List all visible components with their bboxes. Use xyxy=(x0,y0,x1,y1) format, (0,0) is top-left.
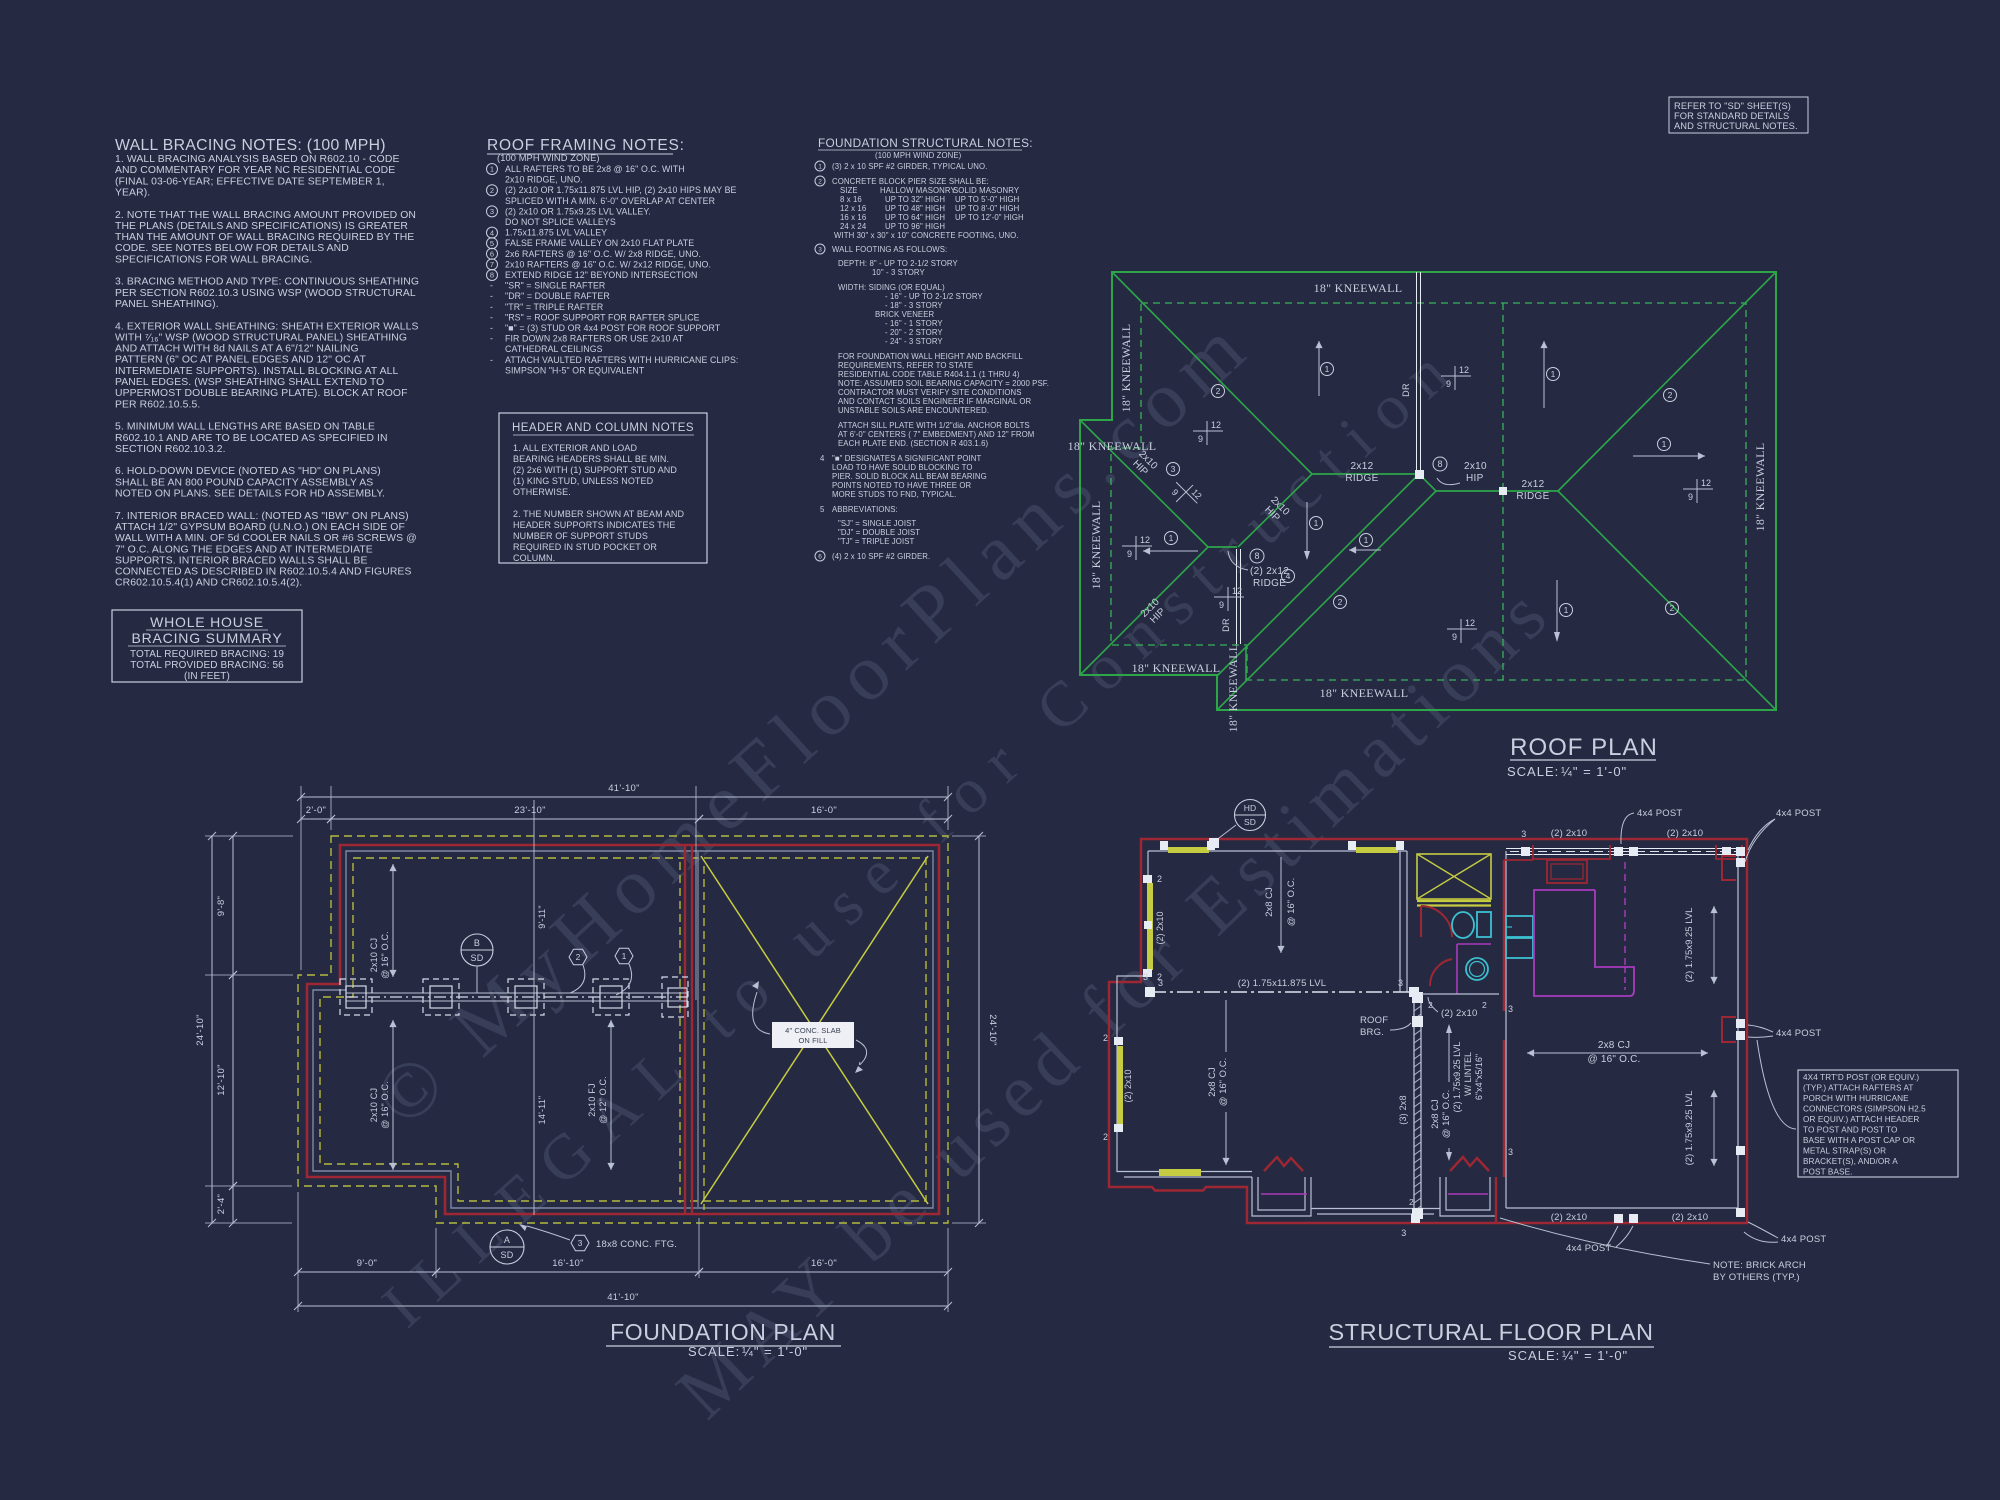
svg-text:UP TO 48" HIGH: UP TO 48" HIGH xyxy=(885,204,945,213)
svg-text:SCALE:: SCALE: xyxy=(688,1344,740,1359)
svg-text:EACH PLATE END. (SECTION R 403: EACH PLATE END. (SECTION R 403.1.6) xyxy=(838,439,989,448)
svg-text:UP TO 12'-0" HIGH: UP TO 12'-0" HIGH xyxy=(955,213,1024,222)
svg-text:- 18" - 3 STORY: - 18" - 3 STORY xyxy=(885,301,943,310)
svg-text:2: 2 xyxy=(1103,1132,1108,1142)
svg-text:@ 16" O.C.: @ 16" O.C. xyxy=(1441,1090,1452,1138)
svg-text:9: 9 xyxy=(1127,549,1132,559)
svg-text:PORCH WITH HURRICANE: PORCH WITH HURRICANE xyxy=(1803,1094,1909,1103)
svg-text:-: - xyxy=(490,312,493,322)
svg-text:TOTAL PROVIDED BRACING: 56: TOTAL PROVIDED BRACING: 56 xyxy=(130,660,284,671)
svg-text:41'-10": 41'-10" xyxy=(607,1292,639,1303)
svg-text:FIR DOWN 2x8 RAFTERS OR USE 2x: FIR DOWN 2x8 RAFTERS OR USE 2x10 AT xyxy=(505,334,684,344)
svg-text:(2) 2x6 WITH (1) SUPPORT STUD: (2) 2x6 WITH (1) SUPPORT STUD AND xyxy=(513,465,677,475)
svg-text:3: 3 xyxy=(578,1238,583,1248)
svg-text:NUMBER OF SUPPORT STUDS: NUMBER OF SUPPORT STUDS xyxy=(513,531,648,541)
svg-text:PANEL SHEATHING).: PANEL SHEATHING). xyxy=(115,299,219,310)
svg-text:3: 3 xyxy=(1398,978,1403,988)
svg-text:POINTS NOTED TO HAVE THREE OR: POINTS NOTED TO HAVE THREE OR xyxy=(832,481,971,490)
svg-text:RIDGE: RIDGE xyxy=(1516,491,1549,502)
svg-text:RESIDENTIAL CODE TABLE R404.1.: RESIDENTIAL CODE TABLE R404.1.1 (1 THRU … xyxy=(838,370,1020,379)
svg-text:1: 1 xyxy=(1325,364,1330,374)
svg-text:RIDGE: RIDGE xyxy=(1253,578,1286,589)
svg-text:ROOF: ROOF xyxy=(1360,1015,1388,1026)
svg-text:1: 1 xyxy=(622,951,627,961)
svg-text:3: 3 xyxy=(1508,1004,1513,1014)
svg-text:16 x 16: 16 x 16 xyxy=(840,213,866,222)
svg-text:2: 2 xyxy=(1668,390,1673,400)
svg-text:PATTERN (6" OC AT PANEL EDGES: PATTERN (6" OC AT PANEL EDGES AND 12" OC… xyxy=(115,355,366,366)
svg-text:2. NOTE THAT THE WALL BRACING: 2. NOTE THAT THE WALL BRACING AMOUNT PRO… xyxy=(115,210,416,221)
svg-text:2x10 FJ: 2x10 FJ xyxy=(587,1083,597,1116)
svg-text:-: - xyxy=(490,281,493,291)
svg-text:HEADER AND COLUMN NOTES: HEADER AND COLUMN NOTES xyxy=(512,422,694,434)
svg-text:16'-0": 16'-0" xyxy=(811,1258,837,1269)
svg-text:5: 5 xyxy=(820,505,825,514)
svg-text:7. INTERIOR BRACED WALL: (NOTE: 7. INTERIOR BRACED WALL: (NOTED AS "IBW"… xyxy=(115,511,409,522)
svg-text:-: - xyxy=(490,302,493,312)
svg-text:PIER. SOLID BLOCK ALL BEAM BEA: PIER. SOLID BLOCK ALL BEAM BEARING xyxy=(832,472,987,481)
svg-text:ROOF PLAN: ROOF PLAN xyxy=(1510,734,1658,761)
svg-text:2x10: 2x10 xyxy=(1464,461,1487,472)
svg-text:3: 3 xyxy=(1143,972,1148,982)
svg-text:@ 16" O.C.: @ 16" O.C. xyxy=(1218,1058,1229,1106)
svg-text:16'-0": 16'-0" xyxy=(811,805,837,816)
svg-text:¼" = 1'-0": ¼" = 1'-0" xyxy=(742,1344,808,1359)
svg-text:B: B xyxy=(474,938,480,948)
svg-text:9'-11": 9'-11" xyxy=(537,905,547,928)
svg-text:"DJ" = DOUBLE JOIST: "DJ" = DOUBLE JOIST xyxy=(838,528,920,537)
svg-text:23'-10": 23'-10" xyxy=(514,805,546,816)
svg-text:"TR" = TRIPLE RAFTER: "TR" = TRIPLE RAFTER xyxy=(505,302,603,312)
svg-text:(2) 2x10: (2) 2x10 xyxy=(1551,1212,1587,1223)
svg-text:@ 12" O.C.: @ 12" O.C. xyxy=(598,1076,608,1124)
svg-text:UP TO 32" HIGH: UP TO 32" HIGH xyxy=(885,195,945,204)
svg-text:@ 16" O.C.: @ 16" O.C. xyxy=(380,1081,390,1129)
svg-text:WHOLE HOUSE: WHOLE HOUSE xyxy=(150,614,264,630)
svg-text:ALL RAFTERS TO BE 2x8 @ 16" O.: ALL RAFTERS TO BE 2x8 @ 16" O.C. WITH xyxy=(505,164,685,174)
svg-text:HD: HD xyxy=(1244,803,1256,813)
svg-text:@ 16" O.C.: @ 16" O.C. xyxy=(1588,1054,1641,1065)
svg-text:2x10 RIDGE, UNO.: 2x10 RIDGE, UNO. xyxy=(505,175,583,185)
svg-text:UP TO 8'-0" HIGH: UP TO 8'-0" HIGH xyxy=(955,204,1019,213)
svg-text:2x8 CJ: 2x8 CJ xyxy=(1264,887,1275,917)
svg-text:"SR" = SINGLE RAFTER: "SR" = SINGLE RAFTER xyxy=(505,281,605,291)
svg-text:SPECIFICATIONS FOR WALL BRACIN: SPECIFICATIONS FOR WALL BRACING. xyxy=(115,254,312,265)
svg-text:4x4 POST: 4x4 POST xyxy=(1776,808,1821,819)
svg-text:2: 2 xyxy=(818,178,822,185)
svg-text:NOTE: ASSUMED SOIL BEARING CAP: NOTE: ASSUMED SOIL BEARING CAPACITY = 20… xyxy=(838,379,1049,388)
svg-text:THAN THE AMOUNT OF WALL BRACIN: THAN THE AMOUNT OF WALL BRACING REQUIRED… xyxy=(115,232,414,243)
svg-text:METAL STRAP(S) OR: METAL STRAP(S) OR xyxy=(1803,1147,1886,1156)
svg-text:2x8 CJ: 2x8 CJ xyxy=(1598,1040,1630,1051)
svg-text:FOR FOUNDATION WALL HEIGHT AND: FOR FOUNDATION WALL HEIGHT AND BACKFILL xyxy=(838,352,1024,361)
svg-text:18" KNEEWALL: 18" KNEEWALL xyxy=(1089,501,1103,590)
svg-text:(4) 2 x 10 SPF #2 GIRDER.: (4) 2 x 10 SPF #2 GIRDER. xyxy=(832,552,930,561)
svg-text:CR602.10.5.4(1) AND CR602.10.5: CR602.10.5.4(1) AND CR602.10.5.4(2). xyxy=(115,578,302,589)
svg-text:1.75x11.875 LVL VALLEY: 1.75x11.875 LVL VALLEY xyxy=(505,228,607,238)
svg-text:(1) KING STUD, UNLESS NOTED: (1) KING STUD, UNLESS NOTED xyxy=(513,476,654,486)
svg-text:(2) 2x10: (2) 2x10 xyxy=(1667,828,1703,839)
svg-text:FALSE FRAME VALLEY ON 2x10 FLA: FALSE FRAME VALLEY ON 2x10 FLAT PLATE xyxy=(505,238,694,248)
svg-text:- 16" - UP TO 2-1/2 STORY: - 16" - UP TO 2-1/2 STORY xyxy=(885,292,983,301)
svg-text:4X4 TRT'D POST (OR EQUIV.): 4X4 TRT'D POST (OR EQUIV.) xyxy=(1803,1073,1919,1082)
svg-text:R602.10.1 AND ARE TO BE LOCATE: R602.10.1 AND ARE TO BE LOCATED AS SPECI… xyxy=(115,433,388,444)
svg-text:5. MINIMUM WALL LENGTHS ARE BA: 5. MINIMUM WALL LENGTHS ARE BASED ON TAB… xyxy=(115,422,375,433)
svg-text:-: - xyxy=(490,334,493,344)
svg-text:1: 1 xyxy=(1169,533,1174,543)
svg-text:3: 3 xyxy=(1508,1147,1513,1157)
svg-text:BY OTHERS (TYP.): BY OTHERS (TYP.) xyxy=(1713,1272,1800,1283)
svg-text:3: 3 xyxy=(1521,829,1526,839)
svg-text:RIDGE: RIDGE xyxy=(1345,473,1378,484)
svg-text:CATHEDRAL CEILINGS: CATHEDRAL CEILINGS xyxy=(505,344,603,354)
svg-text:9: 9 xyxy=(1198,434,1203,444)
svg-text:2x12: 2x12 xyxy=(1522,479,1545,490)
svg-text:7" O.C. ALONG THE EDGES AND AT: 7" O.C. ALONG THE EDGES AND AT INTERMEDI… xyxy=(115,544,373,555)
svg-text:SD: SD xyxy=(471,953,484,963)
svg-text:UP TO 64" HIGH: UP TO 64" HIGH xyxy=(885,213,945,222)
svg-text:2x12: 2x12 xyxy=(1351,461,1374,472)
svg-text:12 x 16: 12 x 16 xyxy=(840,204,866,213)
svg-text:18x8 CONC. FTG.: 18x8 CONC. FTG. xyxy=(596,1239,677,1250)
svg-text:6. HOLD-DOWN DEVICE (NOTED AS: 6. HOLD-DOWN DEVICE (NOTED AS "HD" ON PL… xyxy=(115,466,381,477)
svg-text:- 24" - 3 STORY: - 24" - 3 STORY xyxy=(885,337,943,346)
svg-text:9'-8": 9'-8" xyxy=(216,896,227,916)
svg-text:@ 16" O.C.: @ 16" O.C. xyxy=(1286,878,1297,926)
svg-text:WIDTH: SIDING (OR EQUAL): WIDTH: SIDING (OR EQUAL) xyxy=(838,283,945,292)
svg-text:18" KNEEWALL: 18" KNEEWALL xyxy=(1068,439,1157,453)
svg-text:10" - 3 STORY: 10" - 3 STORY xyxy=(872,268,925,277)
svg-text:BASE WITH A POST CAP OR: BASE WITH A POST CAP OR xyxy=(1803,1136,1915,1145)
svg-text:2x10 CJ: 2x10 CJ xyxy=(369,1088,379,1122)
svg-text:ROOF FRAMING NOTES:: ROOF FRAMING NOTES: xyxy=(487,137,685,154)
svg-text:2x10 CJ: 2x10 CJ xyxy=(369,938,379,972)
svg-text:9: 9 xyxy=(1452,632,1457,642)
svg-text:18" KNEEWALL: 18" KNEEWALL xyxy=(1132,661,1221,675)
svg-text:REFER TO "SD" SHEET(S): REFER TO "SD" SHEET(S) xyxy=(1674,101,1791,111)
svg-text:UNSTABLE SOILS ARE ENCOUNTERED: UNSTABLE SOILS ARE ENCOUNTERED. xyxy=(838,406,989,415)
svg-text:(2) 1.75x9.25 LVL: (2) 1.75x9.25 LVL xyxy=(1684,1091,1695,1166)
svg-text:"SJ" = SINGLE JOIST: "SJ" = SINGLE JOIST xyxy=(838,519,916,528)
svg-text:(2) 1.75x9.25 LVL: (2) 1.75x9.25 LVL xyxy=(1452,1042,1462,1113)
svg-text:(IN FEET): (IN FEET) xyxy=(184,671,230,682)
svg-text:2x8 CJ: 2x8 CJ xyxy=(1430,1099,1441,1129)
svg-text:3: 3 xyxy=(490,207,494,216)
svg-text:- 16" - 1 STORY: - 16" - 1 STORY xyxy=(885,319,943,328)
svg-text:2: 2 xyxy=(1216,386,1221,396)
svg-text:12'-10": 12'-10" xyxy=(216,1064,227,1096)
svg-text:8: 8 xyxy=(1254,551,1259,561)
svg-text:(FINAL 03-06-YEAR; EFFECTIVE D: (FINAL 03-06-YEAR; EFFECTIVE DATE SEPTEM… xyxy=(115,176,385,187)
svg-text:2: 2 xyxy=(1157,874,1162,884)
svg-text:AND STRUCTURAL NOTES.: AND STRUCTURAL NOTES. xyxy=(1674,121,1798,131)
svg-text:18" KNEEWALL: 18" KNEEWALL xyxy=(1753,443,1767,532)
svg-text:¼" = 1'-0": ¼" = 1'-0" xyxy=(1562,1348,1628,1363)
svg-text:1. ALL EXTERIOR AND LOAD: 1. ALL EXTERIOR AND LOAD xyxy=(513,443,638,453)
svg-text:2: 2 xyxy=(1670,603,1675,613)
svg-text:REQUIRED IN STUD POCKET OR: REQUIRED IN STUD POCKET OR xyxy=(513,542,657,552)
svg-text:12: 12 xyxy=(1211,420,1221,430)
svg-text:YEAR).: YEAR). xyxy=(115,187,150,198)
svg-text:HEADER SUPPORTS INDICATES THE: HEADER SUPPORTS INDICATES THE xyxy=(513,520,675,530)
svg-text:2'-4": 2'-4" xyxy=(216,1194,227,1214)
svg-text:CONNECTORS (SIMPSON H2.5: CONNECTORS (SIMPSON H2.5 xyxy=(1803,1105,1926,1114)
svg-text:-: - xyxy=(490,355,493,365)
svg-text:WALL BRACING NOTES: (100 MPH): WALL BRACING NOTES: (100 MPH) xyxy=(115,137,386,154)
svg-text:AND COMMENTARY FOR YEAR NC RES: AND COMMENTARY FOR YEAR NC RESIDENTIAL C… xyxy=(115,165,395,176)
svg-text:SECTION R602.10.3.2.: SECTION R602.10.3.2. xyxy=(115,444,226,455)
svg-text:2: 2 xyxy=(1103,1033,1108,1043)
svg-text:4. EXTERIOR WALL SHEATHING: SH: 4. EXTERIOR WALL SHEATHING: SHEATH EXTER… xyxy=(115,321,419,332)
svg-text:SD: SD xyxy=(1244,817,1256,827)
svg-text:18" KNEEWALL: 18" KNEEWALL xyxy=(1119,324,1133,413)
svg-text:2: 2 xyxy=(1482,1000,1487,1010)
svg-text:STRUCTURAL FLOOR PLAN: STRUCTURAL FLOOR PLAN xyxy=(1328,1319,1653,1345)
svg-text:1: 1 xyxy=(1314,518,1319,528)
svg-text:SCALE:: SCALE: xyxy=(1508,1348,1560,1363)
svg-text:-: - xyxy=(490,323,493,333)
svg-text:9: 9 xyxy=(1219,600,1224,610)
svg-text:ON FILL: ON FILL xyxy=(798,1036,827,1045)
svg-text:(3) 2x8: (3) 2x8 xyxy=(1398,1095,1408,1124)
svg-text:SOLID MASONRY: SOLID MASONRY xyxy=(953,186,1020,195)
svg-text:AND CONTACT SOILS ENGINEER IF: AND CONTACT SOILS ENGINEER IF MARGINAL O… xyxy=(838,397,1032,406)
svg-text:4: 4 xyxy=(490,228,494,237)
svg-text:TO POST AND POST TO: TO POST AND POST TO xyxy=(1803,1126,1897,1135)
svg-text:(2) 2x10: (2) 2x10 xyxy=(1123,1069,1133,1102)
svg-text:- 20" - 2 STORY: - 20" - 2 STORY xyxy=(885,328,943,337)
svg-text:2x6 RAFTERS @ 16" O.C. W/ 2x8: 2x6 RAFTERS @ 16" O.C. W/ 2x8 RIDGE, UNO… xyxy=(505,249,701,259)
svg-text:1: 1 xyxy=(1564,605,1569,615)
svg-text:EXTEND RIDGE 12" BEYOND INTERS: EXTEND RIDGE 12" BEYOND INTERSECTION xyxy=(505,270,697,280)
svg-text:4x4 POST: 4x4 POST xyxy=(1776,1028,1821,1039)
svg-text:12: 12 xyxy=(1140,535,1150,545)
svg-text:DR: DR xyxy=(1221,618,1231,632)
svg-text:2. THE NUMBER SHOWN AT BEAM AN: 2. THE NUMBER SHOWN AT BEAM AND xyxy=(513,509,685,519)
svg-text:SIMPSON "H-5" OR EQUIVALENT: SIMPSON "H-5" OR EQUIVALENT xyxy=(505,365,645,375)
svg-text:CONTRACTOR MUST VERIFY SITE CO: CONTRACTOR MUST VERIFY SITE CONDITIONS xyxy=(838,388,1022,397)
svg-text:REQUIREMENTS, REFER TO STATE: REQUIREMENTS, REFER TO STATE xyxy=(838,361,973,370)
svg-text:4x4 POST: 4x4 POST xyxy=(1637,808,1682,819)
svg-text:BRG.: BRG. xyxy=(1360,1027,1384,1038)
svg-text:W/ LINTEL: W/ LINTEL xyxy=(1463,1052,1473,1096)
svg-text:5: 5 xyxy=(490,239,494,248)
svg-text:(2) 2x10: (2) 2x10 xyxy=(1672,1212,1708,1223)
svg-text:NOTED ON PLANS. SEE DETAILS FO: NOTED ON PLANS. SEE DETAILS FOR HD ASSEM… xyxy=(115,489,385,500)
svg-text:SHALL BE AN 800 POUND CAPACITY: SHALL BE AN 800 POUND CAPACITY ASSEMBLY … xyxy=(115,477,373,488)
svg-text:WITH ⁷⁄₁₆" WSP (WOOD STRUCTURA: WITH ⁷⁄₁₆" WSP (WOOD STRUCTURAL PANEL) S… xyxy=(115,332,407,343)
svg-text:"■" DESIGNATES A SIGNIFICANT P: "■" DESIGNATES A SIGNIFICANT POINT xyxy=(832,454,982,463)
svg-text:18" KNEEWALL: 18" KNEEWALL xyxy=(1320,686,1409,700)
svg-text:(2) 1.75x11.875 LVL: (2) 1.75x11.875 LVL xyxy=(1238,978,1326,989)
svg-text:"TJ" = TRIPLE JOIST: "TJ" = TRIPLE JOIST xyxy=(838,537,915,546)
svg-text:2: 2 xyxy=(490,186,494,195)
svg-text:4: 4 xyxy=(1286,571,1291,581)
svg-text:SCALE:: SCALE: xyxy=(1507,764,1559,779)
svg-text:BRACING SUMMARY: BRACING SUMMARY xyxy=(132,630,283,646)
svg-text:9'-0": 9'-0" xyxy=(357,1258,377,1269)
svg-text:WITH 30" x 30" x 10" CONCRETE: WITH 30" x 30" x 10" CONCRETE FOOTING, U… xyxy=(834,231,1019,240)
svg-text:UPPERMOST DOUBLE BEARING PLATE: UPPERMOST DOUBLE BEARING PLATE). BLOCK A… xyxy=(115,388,408,399)
svg-text:1: 1 xyxy=(1662,439,1667,449)
svg-text:DEPTH: 8" - UP TO 2-1/2 STORY: DEPTH: 8" - UP TO 2-1/2 STORY xyxy=(838,259,958,268)
svg-text:8: 8 xyxy=(1437,459,1442,469)
svg-text:AT 6'-0" CENTERS ( 7" EMBEDMEN: AT 6'-0" CENTERS ( 7" EMBEDMENT) AND 12"… xyxy=(838,430,1034,439)
svg-text:6: 6 xyxy=(818,553,822,560)
svg-text:HALLOW MASONRY: HALLOW MASONRY xyxy=(880,186,956,195)
svg-text:DO NOT SPLICE VALLEYS: DO NOT SPLICE VALLEYS xyxy=(505,217,616,227)
svg-text:24 x 24: 24 x 24 xyxy=(840,222,867,231)
svg-text:9: 9 xyxy=(1446,379,1451,389)
svg-text:THE PLANS (DETAILS AND SPECIFI: THE PLANS (DETAILS AND SPECIFICATIONS) I… xyxy=(115,221,408,232)
svg-text:14'-11": 14'-11" xyxy=(537,1096,547,1125)
svg-text:1: 1 xyxy=(1364,535,1369,545)
svg-text:TOTAL REQUIRED BRACING: 19: TOTAL REQUIRED BRACING: 19 xyxy=(130,649,284,660)
svg-text:12: 12 xyxy=(1465,618,1475,628)
svg-text:(2) 1.75x9.25 LVL: (2) 1.75x9.25 LVL xyxy=(1684,908,1695,983)
svg-text:HIP: HIP xyxy=(1466,473,1484,484)
svg-text:2: 2 xyxy=(576,952,581,962)
svg-text:AND ATTACH WITH 8d NAILS AT A: AND ATTACH WITH 8d NAILS AT A 6"/12" NAI… xyxy=(115,344,359,355)
svg-text:16'-10": 16'-10" xyxy=(552,1258,584,1269)
svg-text:"RS" = ROOF SUPPORT FOR RAFTER: "RS" = ROOF SUPPORT FOR RAFTER SPLICE xyxy=(505,312,700,322)
svg-text:24'-10": 24'-10" xyxy=(987,1014,998,1046)
svg-text:ATTACH 1/2" GYPSUM BOARD (U.N.: ATTACH 1/2" GYPSUM BOARD (U.N.O.) ON EAC… xyxy=(115,522,405,533)
svg-text:A: A xyxy=(504,1235,510,1245)
svg-text:3. BRACING METHOD AND TYPE: CO: 3. BRACING METHOD AND TYPE: CONTINUOUS S… xyxy=(115,277,419,288)
svg-text:ATTACH VAULTED RAFTERS WITH HU: ATTACH VAULTED RAFTERS WITH HURRICANE CL… xyxy=(505,355,738,365)
svg-text:2: 2 xyxy=(1409,1197,1414,1207)
svg-text:7: 7 xyxy=(490,260,494,269)
svg-text:OTHERWISE.: OTHERWISE. xyxy=(513,487,571,497)
svg-text:(100 MPH WIND ZONE): (100 MPH WIND ZONE) xyxy=(875,151,962,160)
svg-text:SIZE: SIZE xyxy=(840,186,858,195)
svg-text:3: 3 xyxy=(1401,1228,1406,1238)
svg-text:(2) 2x10: (2) 2x10 xyxy=(1441,1008,1477,1019)
svg-text:(2) 2x10 OR 1.75x9.25 LVL VALL: (2) 2x10 OR 1.75x9.25 LVL VALLEY. xyxy=(505,206,651,216)
svg-text:CONCRETE BLOCK PIER SIZE SHALL: CONCRETE BLOCK PIER SIZE SHALL BE: xyxy=(832,177,989,186)
svg-text:6"x4"x5/16": 6"x4"x5/16" xyxy=(1474,1054,1484,1100)
svg-text:3: 3 xyxy=(1171,464,1176,474)
svg-text:OR EQUIV.) ATTACH HEADER: OR EQUIV.) ATTACH HEADER xyxy=(1803,1115,1919,1124)
svg-text:"■" = (3) STUD OR 4x4 POST FO: "■" = (3) STUD OR 4x4 POST FOR ROOF SUPP… xyxy=(505,323,721,333)
svg-text:UP TO 96" HIGH: UP TO 96" HIGH xyxy=(885,222,945,231)
svg-text:WALL FOOTING AS FOLLOWS:: WALL FOOTING AS FOLLOWS: xyxy=(832,245,947,254)
svg-text:(2) 2x10: (2) 2x10 xyxy=(1551,828,1587,839)
svg-text:LOAD TO HAVE SOLID BLOCKING TO: LOAD TO HAVE SOLID BLOCKING TO xyxy=(832,463,973,472)
svg-text:1: 1 xyxy=(818,163,822,170)
svg-text:FOUNDATION STRUCTURAL NOTES:: FOUNDATION STRUCTURAL NOTES: xyxy=(818,136,1033,150)
svg-text:PANEL EDGES. (WSP SHEATHING SH: PANEL EDGES. (WSP SHEATHING SHALL EXTEND… xyxy=(115,377,384,388)
svg-text:POST BASE.: POST BASE. xyxy=(1803,1168,1853,1177)
svg-text:BRICK VENEER: BRICK VENEER xyxy=(875,310,935,319)
svg-text:SD: SD xyxy=(501,1250,514,1260)
svg-text:8: 8 xyxy=(490,271,494,280)
svg-text:8 x 16: 8 x 16 xyxy=(840,195,862,204)
svg-text:BRACKET(S), AND/OR A: BRACKET(S), AND/OR A xyxy=(1803,1157,1898,1166)
svg-text:1: 1 xyxy=(490,165,494,174)
svg-text:9: 9 xyxy=(1688,492,1693,502)
svg-text:NOTE: BRICK ARCH: NOTE: BRICK ARCH xyxy=(1713,1260,1806,1271)
svg-text:FOUNDATION PLAN: FOUNDATION PLAN xyxy=(610,1319,836,1345)
svg-text:CONNECTED AS DESCRIBED IN R602: CONNECTED AS DESCRIBED IN R602.10.5.4 AN… xyxy=(115,567,412,578)
svg-text:1. WALL BRACING ANALYSIS BASED: 1. WALL BRACING ANALYSIS BASED ON R602.1… xyxy=(115,154,399,165)
svg-text:-: - xyxy=(490,291,493,301)
svg-text:2: 2 xyxy=(1157,972,1162,982)
svg-text:¼" = 1'-0": ¼" = 1'-0" xyxy=(1561,764,1627,779)
svg-text:4" CONC. SLAB: 4" CONC. SLAB xyxy=(785,1026,841,1035)
svg-text:2x10 RAFTERS @ 16" O.C. W/ 2x1: 2x10 RAFTERS @ 16" O.C. W/ 2x12 RIDGE, U… xyxy=(505,259,711,269)
svg-text:FOR STANDARD DETAILS: FOR STANDARD DETAILS xyxy=(1674,111,1789,121)
svg-text:BEARING HEADERS SHALL BE MIN.: BEARING HEADERS SHALL BE MIN. xyxy=(513,454,669,464)
svg-text:(3) 2 x 10 SPF #2 GIRDER, TYPI: (3) 2 x 10 SPF #2 GIRDER, TYPICAL UNO. xyxy=(832,162,987,171)
svg-text:"DR" = DOUBLE RAFTER: "DR" = DOUBLE RAFTER xyxy=(505,291,610,301)
svg-text:24'-10": 24'-10" xyxy=(195,1014,206,1046)
svg-text:4x4 POST: 4x4 POST xyxy=(1781,1234,1826,1245)
svg-text:INTERMEDIATE SUPPORTS). INSTAL: INTERMEDIATE SUPPORTS). INSTALL BLOCKING… xyxy=(115,366,399,377)
svg-text:12: 12 xyxy=(1459,365,1469,375)
svg-text:3: 3 xyxy=(818,246,822,253)
svg-text:ATTACH SILL PLATE WITH 1/2"dia: ATTACH SILL PLATE WITH 1/2"dia. ANCHOR B… xyxy=(838,421,1030,430)
svg-text:UP TO 5'-0" HIGH: UP TO 5'-0" HIGH xyxy=(955,195,1019,204)
svg-text:41'-10": 41'-10" xyxy=(608,783,640,794)
svg-text:MORE STUDS TO FND, TYPICAL.: MORE STUDS TO FND, TYPICAL. xyxy=(832,490,956,499)
svg-text:(TYP.) ATTACH RAFTERS AT: (TYP.) ATTACH RAFTERS AT xyxy=(1803,1084,1914,1093)
svg-text:PER R602.10.5.5.: PER R602.10.5.5. xyxy=(115,399,200,410)
svg-text:ABBREVIATIONS:: ABBREVIATIONS: xyxy=(832,505,898,514)
svg-text:12: 12 xyxy=(1232,586,1242,596)
svg-text:4: 4 xyxy=(820,454,825,463)
svg-text:18" KNEEWALL: 18" KNEEWALL xyxy=(1226,644,1240,733)
svg-text:2'-0": 2'-0" xyxy=(306,805,326,816)
svg-text:1: 1 xyxy=(1551,369,1556,379)
svg-text:COLUMN.: COLUMN. xyxy=(513,553,555,563)
svg-text:@ 16" O.C.: @ 16" O.C. xyxy=(380,931,390,979)
svg-text:CODE. SEE NOTES BELOW FOR DETA: CODE. SEE NOTES BELOW FOR DETAILS AND xyxy=(115,243,349,254)
svg-text:SPLICED WITH A MIN. 6'-0" OVER: SPLICED WITH A MIN. 6'-0" OVERLAP AT CEN… xyxy=(505,196,715,206)
svg-text:2: 2 xyxy=(1428,1000,1433,1010)
svg-text:6: 6 xyxy=(490,250,494,259)
svg-text:18" KNEEWALL: 18" KNEEWALL xyxy=(1314,281,1403,295)
svg-text:2x8 CJ: 2x8 CJ xyxy=(1207,1067,1218,1097)
svg-text:PER SECTION R602.10.3 USING WS: PER SECTION R602.10.3 USING WSP (WOOD ST… xyxy=(115,288,416,299)
svg-text:(100 MPH WIND ZONE): (100 MPH WIND ZONE) xyxy=(497,153,600,163)
svg-text:SUPPORTS. INTERIOR BRACED WAL: SUPPORTS. INTERIOR BRACED WALLS SHALL BE xyxy=(115,555,367,566)
svg-text:WALL WITH A MIN. OF 5d COOLER: WALL WITH A MIN. OF 5d COOLER NAILS OR #… xyxy=(115,533,417,544)
svg-text:(2) 2x10 OR 1.75x11.875 LVL HI: (2) 2x10 OR 1.75x11.875 LVL HIP, (2) 2x1… xyxy=(505,185,737,195)
svg-text:(2) 2x10: (2) 2x10 xyxy=(1155,911,1165,944)
svg-text:DR: DR xyxy=(1401,383,1411,397)
svg-text:2: 2 xyxy=(1338,597,1343,607)
svg-text:12: 12 xyxy=(1701,478,1711,488)
